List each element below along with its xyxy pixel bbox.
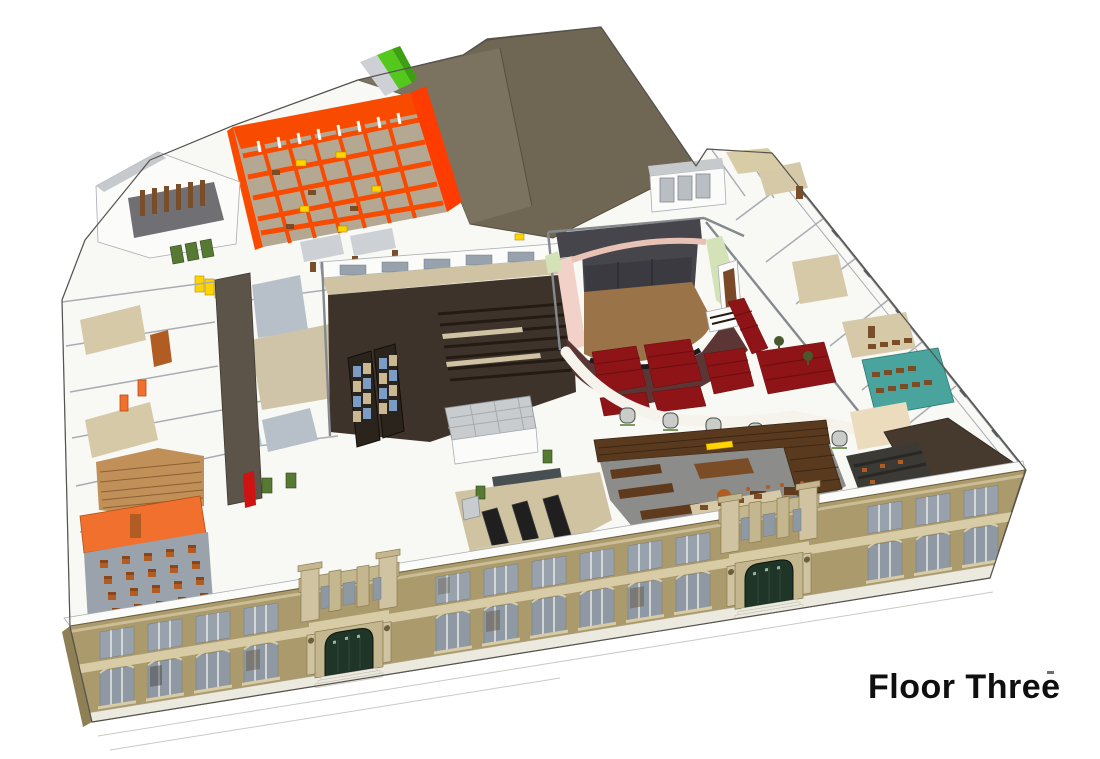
floor-label: Floor Three: [868, 668, 1068, 707]
screenshot-root: Floor Three: [0, 0, 1100, 759]
red-door: [243, 471, 256, 508]
stained-glass-doors: [348, 344, 404, 447]
axonometric-rendering: [0, 0, 1100, 759]
stray-mark: [1047, 671, 1054, 674]
